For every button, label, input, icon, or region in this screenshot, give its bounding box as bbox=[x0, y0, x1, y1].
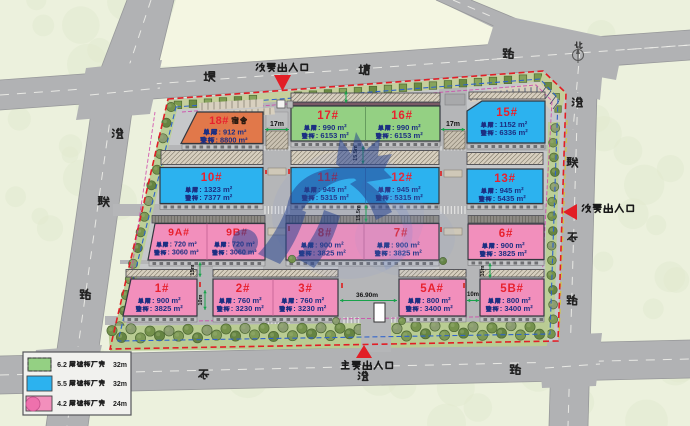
svg-text:: 6153 m²: : 6153 m² bbox=[390, 131, 423, 140]
svg-text:32m: 32m bbox=[113, 381, 127, 388]
svg-text:2#: 2# bbox=[236, 283, 250, 295]
svg-text:: 3230 m²: : 3230 m² bbox=[293, 304, 326, 313]
svg-text:: 6336 m²: : 6336 m² bbox=[495, 128, 528, 137]
svg-text:24m: 24m bbox=[113, 401, 127, 408]
svg-text:5A#: 5A# bbox=[420, 283, 444, 295]
svg-text:: 3400 m²: : 3400 m² bbox=[420, 304, 453, 313]
svg-text:3#: 3# bbox=[298, 283, 312, 295]
svg-text:13#: 13# bbox=[494, 173, 516, 185]
svg-text:5B#: 5B# bbox=[500, 283, 524, 295]
svg-text:9A#: 9A# bbox=[168, 227, 190, 239]
svg-text:: 6153 m²: : 6153 m² bbox=[316, 131, 349, 140]
svg-text:: 3825 m²: : 3825 m² bbox=[494, 249, 527, 258]
svg-text:17#: 17# bbox=[317, 110, 339, 122]
svg-text:4.2: 4.2 bbox=[57, 401, 67, 408]
svg-text:: 3060 m²: : 3060 m² bbox=[168, 248, 200, 257]
svg-text:17m: 17m bbox=[270, 121, 284, 128]
svg-text:: 3400 m²: : 3400 m² bbox=[500, 304, 533, 313]
svg-text:17m: 17m bbox=[446, 121, 460, 128]
svg-text:: 5435 m²: : 5435 m² bbox=[493, 194, 526, 203]
svg-text:6.2: 6.2 bbox=[57, 362, 67, 369]
svg-text:18#: 18# bbox=[209, 115, 229, 127]
svg-text:1#: 1# bbox=[155, 283, 169, 295]
svg-text:15m: 15m bbox=[480, 265, 486, 276]
svg-text:: 3825 m²: : 3825 m² bbox=[150, 304, 183, 313]
svg-text:10m: 10m bbox=[467, 292, 479, 298]
svg-text:16#: 16# bbox=[391, 110, 413, 122]
svg-text:15m: 15m bbox=[190, 264, 196, 275]
svg-text:36.90m: 36.90m bbox=[356, 292, 378, 299]
svg-text:: 3230 m²: : 3230 m² bbox=[231, 304, 264, 313]
svg-text:6#: 6# bbox=[499, 228, 513, 240]
svg-text:5.5: 5.5 bbox=[57, 381, 67, 388]
svg-text:32m: 32m bbox=[113, 362, 127, 369]
svg-text:10m: 10m bbox=[198, 294, 204, 305]
svg-text:: 7377 m²: : 7377 m² bbox=[199, 193, 232, 202]
svg-text:15#: 15# bbox=[496, 107, 518, 119]
svg-text:: 8800 m²: : 8800 m² bbox=[216, 136, 249, 145]
svg-text:10#: 10# bbox=[201, 172, 223, 184]
